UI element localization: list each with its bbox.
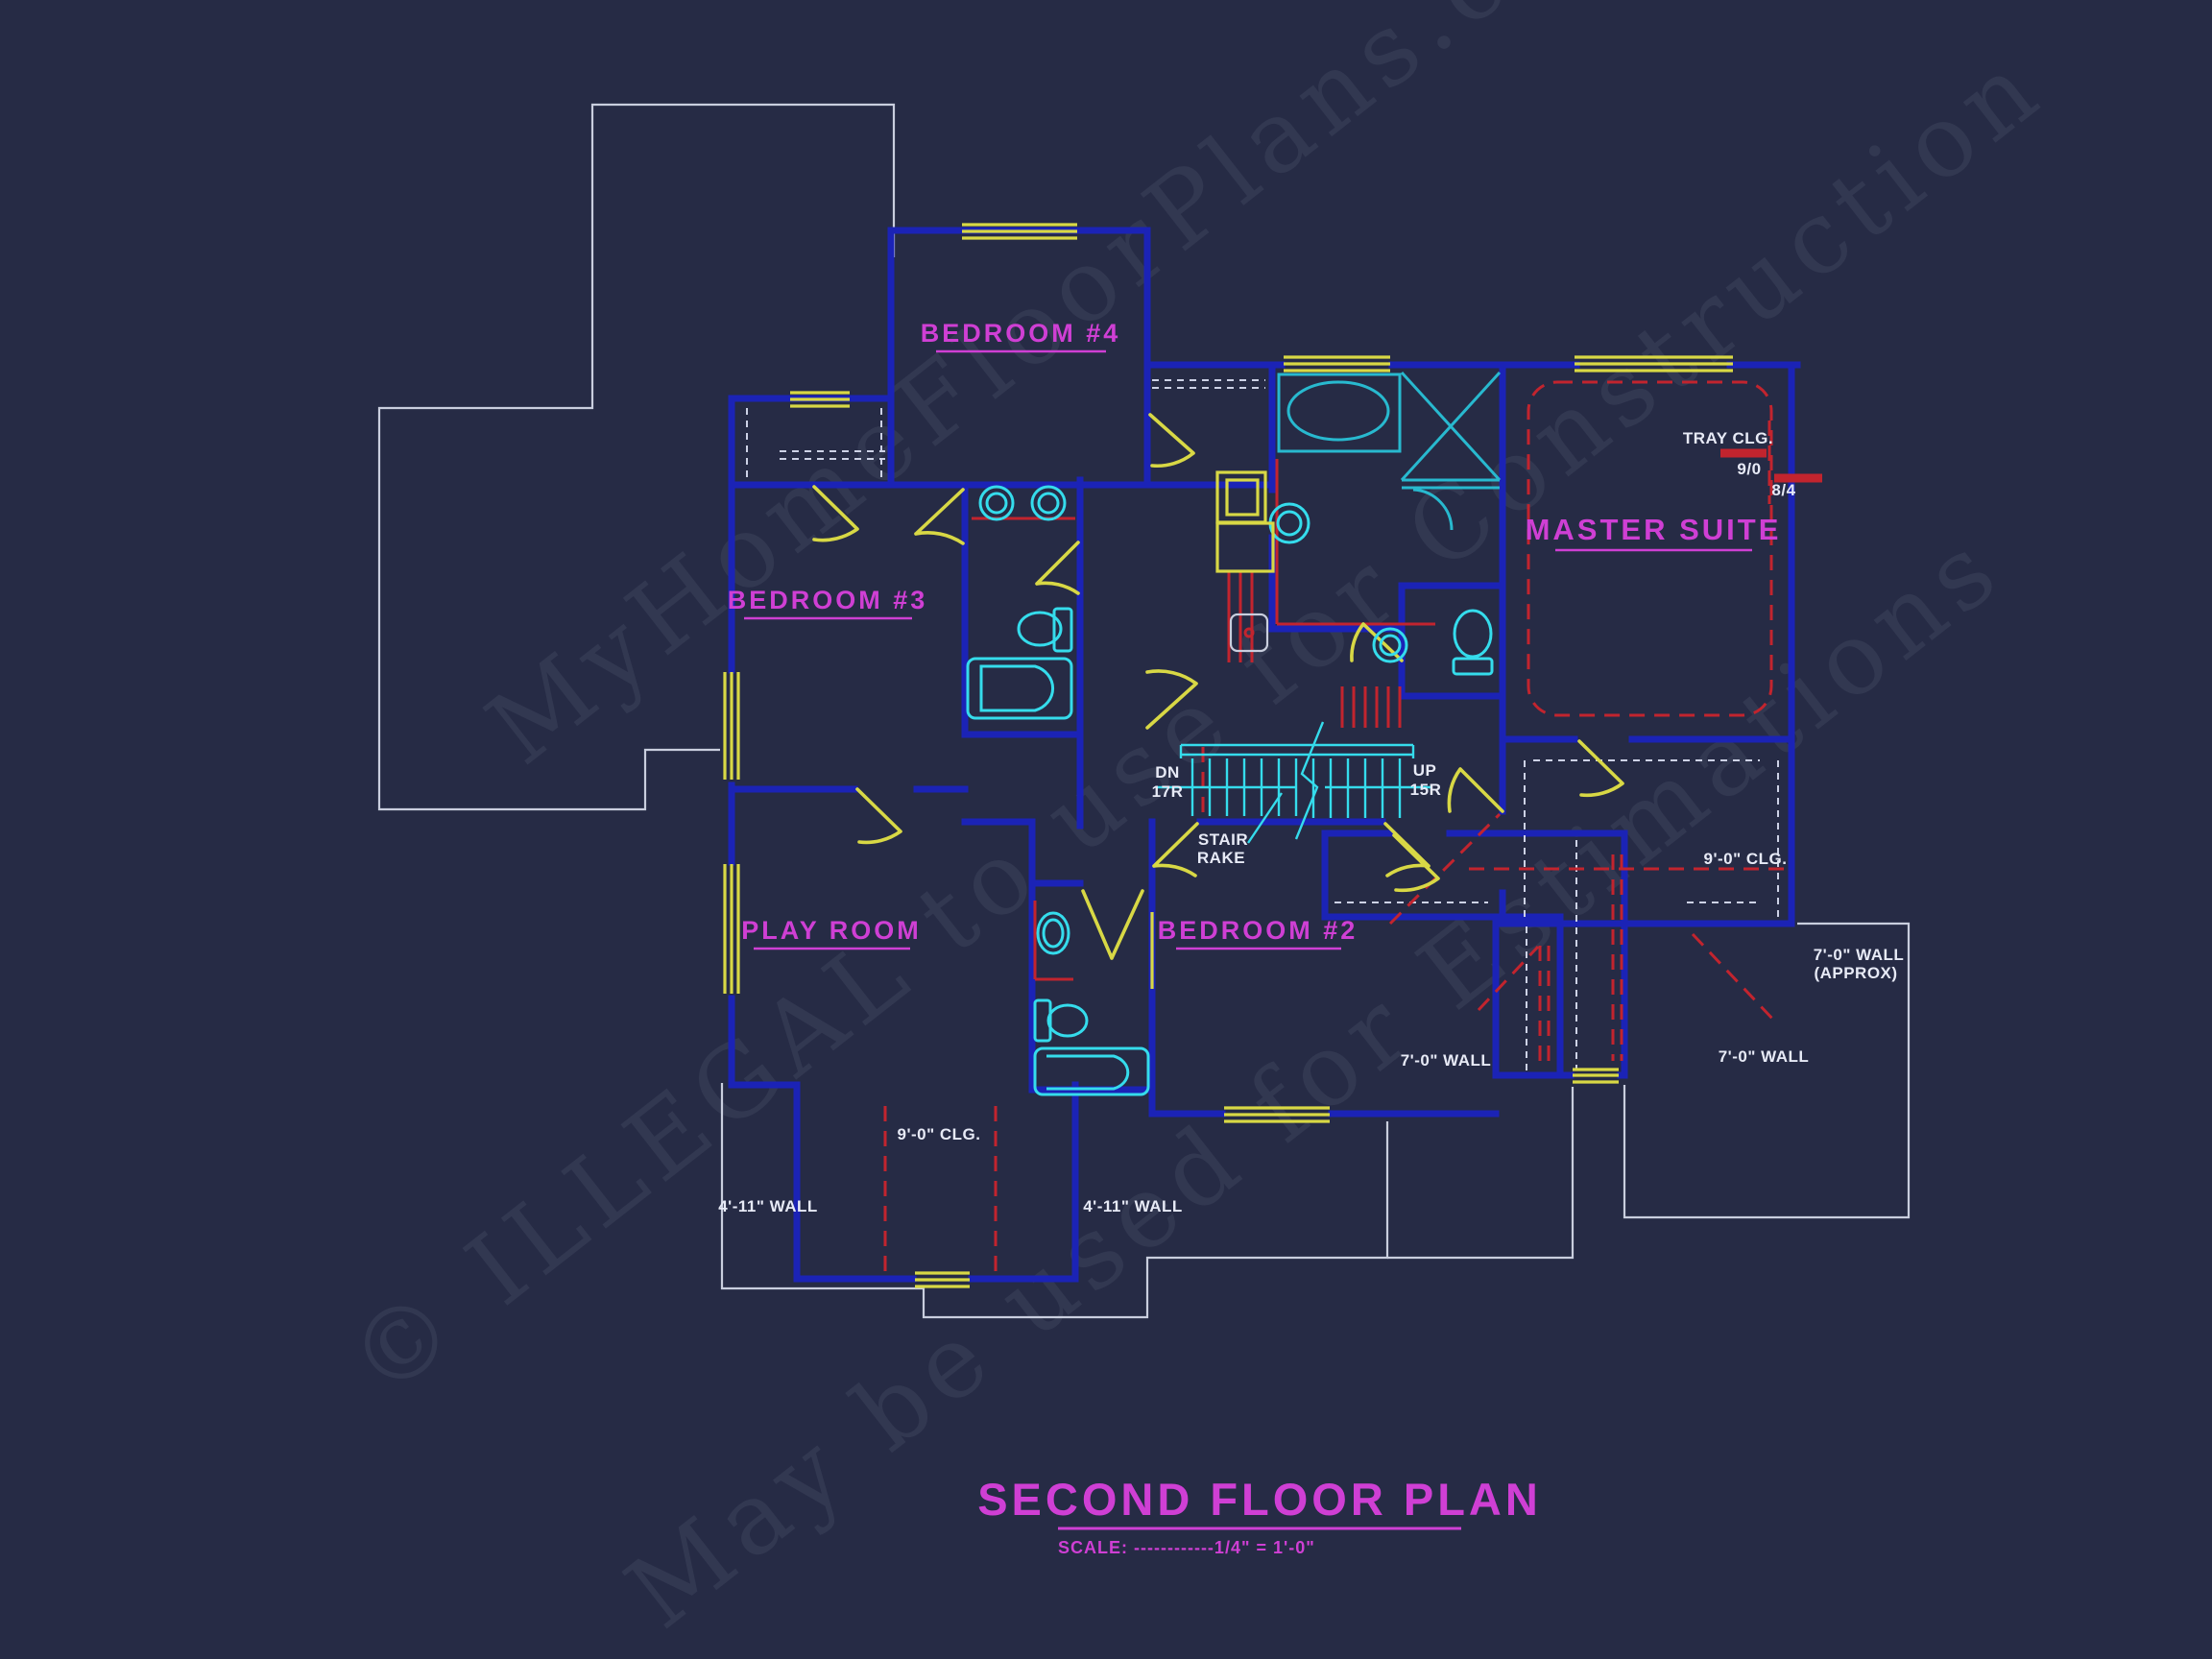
wall-note-approx-1: 7'-0" WALL bbox=[1814, 946, 1905, 964]
wall-note-approx-2: (APPROX) bbox=[1814, 964, 1897, 982]
plan-scale: SCALE: ------------1/4" = 1'-0" bbox=[1058, 1538, 1315, 1557]
sink-icon bbox=[980, 487, 1013, 519]
wall-note-left: 7'-0" WALL bbox=[1401, 1051, 1492, 1070]
toilet-icon bbox=[1048, 1005, 1087, 1036]
tray-clg-note: TRAY CLG. bbox=[1683, 429, 1773, 447]
sink-icon bbox=[1032, 487, 1065, 519]
toilet-icon bbox=[1455, 611, 1491, 657]
room-label-play-room: PLAY ROOM bbox=[741, 916, 922, 945]
stair-up-risers: 15R bbox=[1410, 781, 1442, 799]
stair-rake-line2: RAKE bbox=[1197, 849, 1245, 867]
floor-plan: MyHomeFloorPlans.com © ILLEGAL to use fo… bbox=[0, 0, 2212, 1659]
ceiling-note-right: 9'-0" CLG. bbox=[1703, 850, 1787, 868]
garden-tub-icon bbox=[1288, 382, 1388, 440]
title-block: SECOND FLOOR PLAN SCALE: ------------1/4… bbox=[977, 1474, 1542, 1557]
door-size-8-4: 8/4 bbox=[1771, 481, 1795, 499]
kneewall-note-right: 4'-11" WALL bbox=[1083, 1197, 1183, 1215]
watermark-site: MyHomeFloorPlans.com bbox=[466, 0, 1671, 787]
stair-rake-line1: STAIR bbox=[1198, 830, 1248, 849]
plan-title: SECOND FLOOR PLAN bbox=[977, 1474, 1542, 1525]
ceiling-note-bottom: 9'-0" CLG. bbox=[897, 1125, 980, 1143]
stair-up: UP bbox=[1413, 761, 1437, 780]
floor-plan-canvas: MyHomeFloorPlans.com © ILLEGAL to use fo… bbox=[0, 0, 2212, 1659]
room-label-master-suite: MASTER SUITE bbox=[1526, 513, 1782, 546]
room-label-bedroom4: BEDROOM #4 bbox=[921, 319, 1121, 348]
stair-dn: DN bbox=[1155, 763, 1180, 781]
kneewall-note-left: 4'-11" WALL bbox=[718, 1197, 818, 1215]
stair-dn-risers: 17R bbox=[1152, 782, 1184, 801]
wall-note-right: 7'-0" WALL bbox=[1719, 1047, 1810, 1066]
door-size-9-0: 9/0 bbox=[1737, 460, 1761, 478]
room-label-bedroom3: BEDROOM #3 bbox=[728, 586, 928, 614]
room-label-bedroom2: BEDROOM #2 bbox=[1158, 916, 1358, 945]
